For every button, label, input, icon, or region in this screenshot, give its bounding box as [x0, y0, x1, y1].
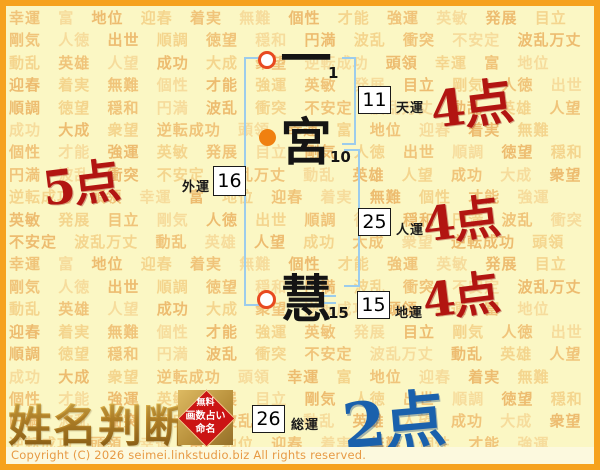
circle-marker-icon: [257, 290, 276, 309]
soun-label: 総運: [291, 414, 319, 433]
stamp-text: 無料 画数占い 命名: [178, 397, 233, 436]
gaiun-value-box: 16: [213, 166, 246, 196]
stamp-line-3: 命名: [178, 423, 233, 436]
tenun-value-box: 11: [358, 86, 391, 114]
stamp-line-2: 画数占い: [178, 410, 233, 423]
site-logo[interactable]: 姓名判断: [8, 390, 188, 454]
seimei-result-page: 幸運 富 地位 迎春 着実 無難 個性 才能 強運 英敏 発展 目立 剛気 人徳…: [0, 0, 600, 470]
circle-marker-icon: [259, 129, 276, 146]
bracket-tenun: [342, 57, 356, 145]
gaiun-label: 外運: [182, 176, 210, 195]
circle-marker-icon: [258, 51, 276, 69]
tenun-label: 天運: [396, 97, 424, 116]
copyright-text: Copyright (C) 2026 seimei.linkstudio.biz…: [11, 448, 366, 462]
stamp-line-1: 無料: [178, 397, 233, 410]
jinun-value-box: 25: [358, 208, 391, 236]
soun-value-box: 26: [252, 405, 285, 433]
name-char-1: 一: [279, 34, 333, 88]
free-fortune-stamp[interactable]: 無料 画数占い 命名: [178, 390, 233, 445]
stroke-count-3: 15: [328, 304, 349, 322]
chiun-label: 地運: [395, 302, 423, 321]
stroke-count-2: 10: [330, 148, 351, 166]
jinun-score: 4点: [418, 178, 502, 256]
chiun-score: 4点: [418, 254, 502, 332]
stroke-count-1: 1: [328, 64, 338, 82]
jinun-label: 人運: [396, 219, 424, 238]
name-char-3: 慧: [279, 274, 333, 328]
name-char-2: 宮: [279, 117, 333, 171]
bracket-gaiun: [244, 57, 259, 306]
footer-bar: Copyright (C) 2026 seimei.linkstudio.biz…: [6, 447, 594, 464]
tenun-score: 4点: [426, 61, 515, 142]
chiun-value-box: 15: [357, 291, 390, 319]
gaiun-score: 5点: [38, 142, 122, 220]
